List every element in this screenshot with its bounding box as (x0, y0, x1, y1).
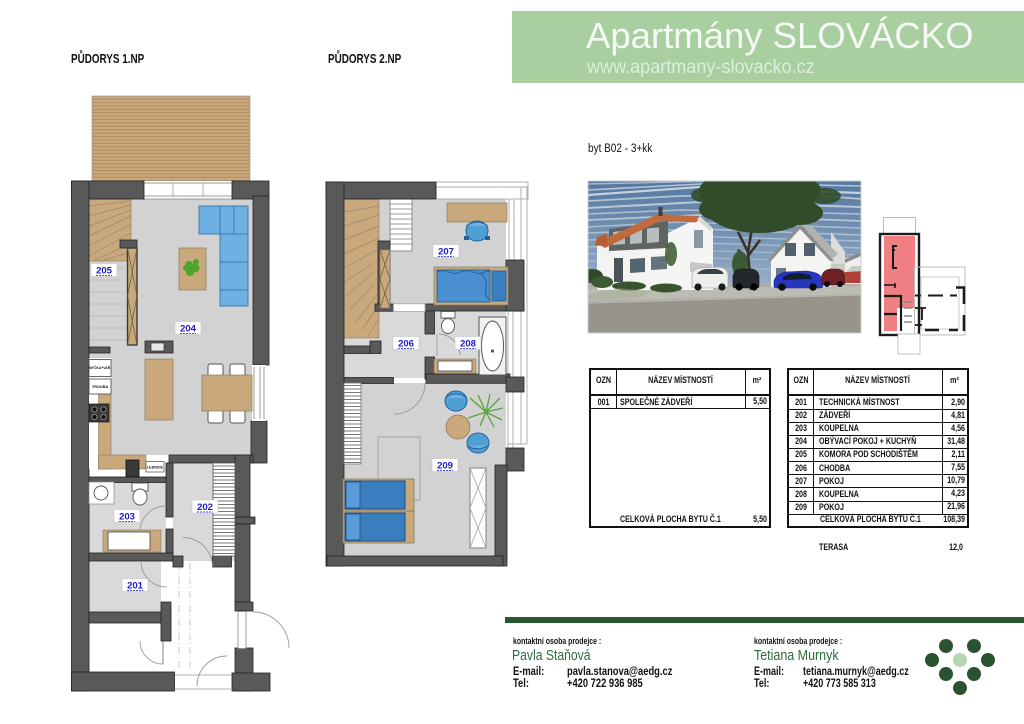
svg-text:202: 202 (197, 502, 213, 513)
svg-text:206: 206 (398, 339, 414, 350)
svg-text:208: 208 (460, 339, 476, 350)
svg-text:MYČKA+VAŘ.: MYČKA+VAŘ. (89, 365, 111, 370)
svg-text:203: 203 (119, 512, 135, 523)
svg-text:204: 204 (180, 324, 197, 335)
svg-text:209: 209 (437, 461, 453, 472)
svg-text:201: 201 (127, 581, 144, 592)
svg-text:LEDNICE: LEDNICE (147, 466, 163, 470)
svg-text:205: 205 (96, 266, 113, 277)
svg-text:207: 207 (438, 247, 454, 258)
svg-text:TROUBA: TROUBA (92, 385, 108, 389)
